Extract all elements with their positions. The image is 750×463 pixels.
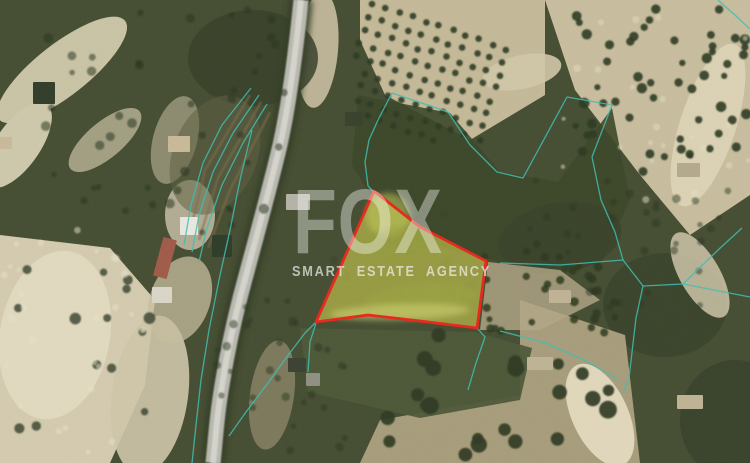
satellite-map: FOX SMART ESTATE AGENCY (0, 0, 750, 463)
grain-overlay (0, 0, 750, 463)
satellite-image (0, 0, 750, 463)
